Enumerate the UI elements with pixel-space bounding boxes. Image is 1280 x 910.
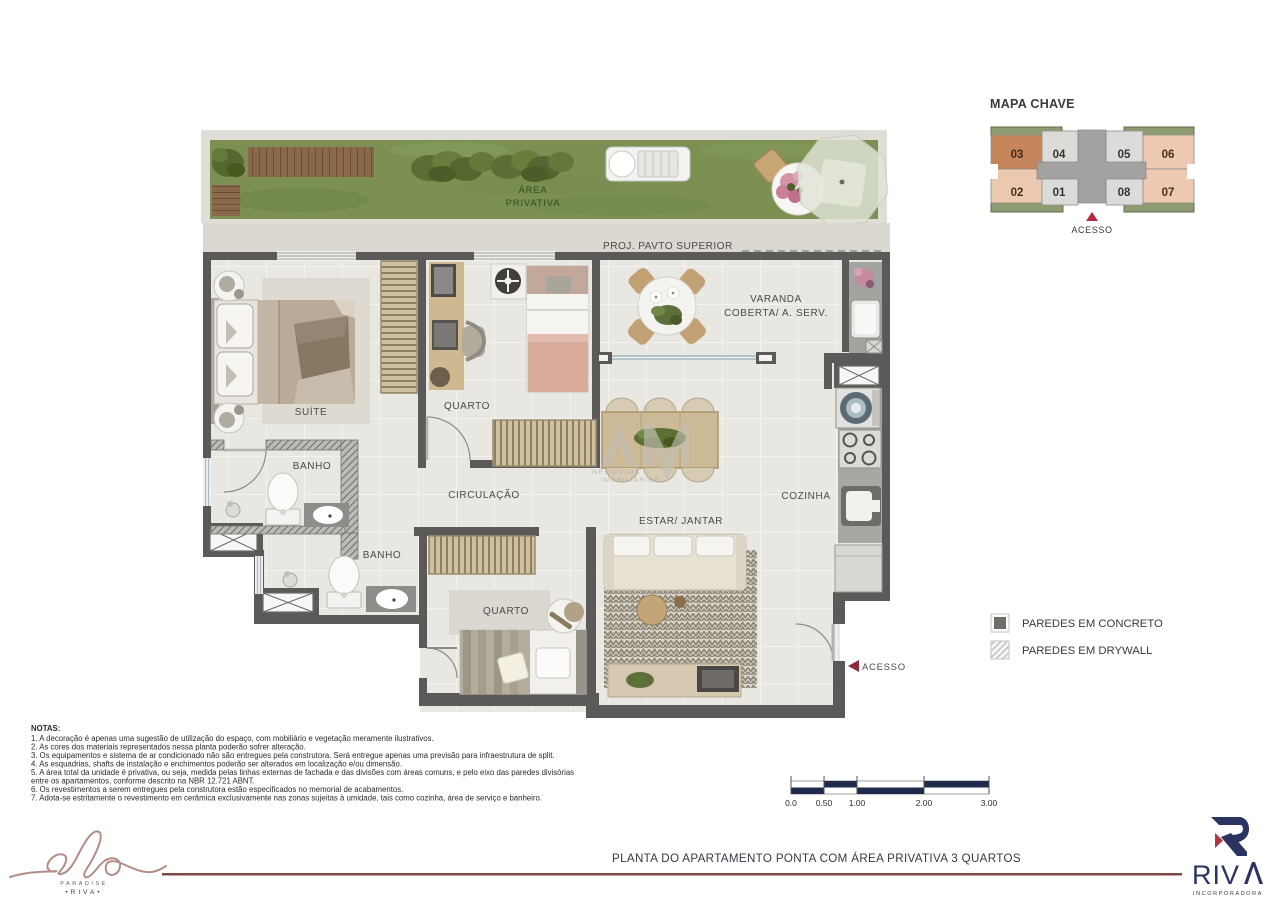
svg-text:BANHO: BANHO [363, 550, 402, 561]
svg-text:3.00: 3.00 [981, 798, 998, 808]
svg-text:1.00: 1.00 [849, 798, 866, 808]
svg-text:04: 04 [1053, 149, 1066, 161]
svg-text:ACESSO: ACESSO [1071, 225, 1112, 235]
svg-text:06: 06 [1162, 149, 1175, 161]
svg-text:01: 01 [1053, 187, 1066, 199]
svg-text:QUARTO: QUARTO [444, 401, 490, 412]
svg-text:PAREDES EM DRYWALL: PAREDES EM DRYWALL [1022, 645, 1152, 657]
svg-text:INCORPORADORA: INCORPORADORA [1193, 891, 1263, 897]
svg-text:QUARTO: QUARTO [483, 606, 529, 617]
svg-text:PLANTA DO APARTAMENTO PONTA CO: PLANTA DO APARTAMENTO PONTA COM ÁREA PRI… [612, 852, 1021, 865]
svg-text:RIV: RIV [1192, 860, 1240, 890]
svg-text:BANHO: BANHO [293, 461, 332, 472]
svg-text:•RIVA•: •RIVA• [65, 889, 102, 896]
svg-text:0.0: 0.0 [785, 798, 797, 808]
svg-text:PRIVATIVA: PRIVATIVA [506, 198, 561, 209]
svg-text:03: 03 [1011, 149, 1024, 161]
svg-text:COBERTA/ A. SERV.: COBERTA/ A. SERV. [724, 308, 828, 319]
svg-text:COZINHA: COZINHA [781, 491, 830, 502]
svg-text:PAREDES EM CONCRETO: PAREDES EM CONCRETO [1022, 618, 1163, 630]
svg-text:08: 08 [1118, 187, 1131, 199]
svg-text:PARADISE: PARADISE [60, 881, 107, 887]
svg-text:IMOBILIÁRIOS: IMOBILIÁRIOS [601, 475, 660, 484]
svg-text:MAPA CHAVE: MAPA CHAVE [990, 97, 1075, 111]
svg-text:VARANDA: VARANDA [750, 294, 802, 305]
svg-text:07: 07 [1162, 187, 1175, 199]
svg-text:ESTAR/ JANTAR: ESTAR/ JANTAR [639, 516, 723, 527]
svg-text:7. Adota-se estritamente o rev: 7. Adota-se estritamente o revestimento … [31, 794, 542, 803]
svg-text:SUÍTE: SUÍTE [295, 405, 327, 418]
svg-text:0.50: 0.50 [816, 798, 833, 808]
svg-text:NEGÓCIOS: NEGÓCIOS [592, 467, 641, 476]
svg-text:2.00: 2.00 [916, 798, 933, 808]
svg-text:ÁREA: ÁREA [518, 185, 547, 196]
svg-text:05: 05 [1118, 149, 1131, 161]
svg-text:ACESSO: ACESSO [862, 662, 906, 673]
svg-text:02: 02 [1011, 187, 1024, 199]
svg-text:NOTAS:: NOTAS: [31, 724, 60, 733]
svg-text:CIRCULAÇÃO: CIRCULAÇÃO [448, 488, 520, 501]
svg-text:PROJ. PAVTO SUPERIOR: PROJ. PAVTO SUPERIOR [603, 241, 733, 252]
